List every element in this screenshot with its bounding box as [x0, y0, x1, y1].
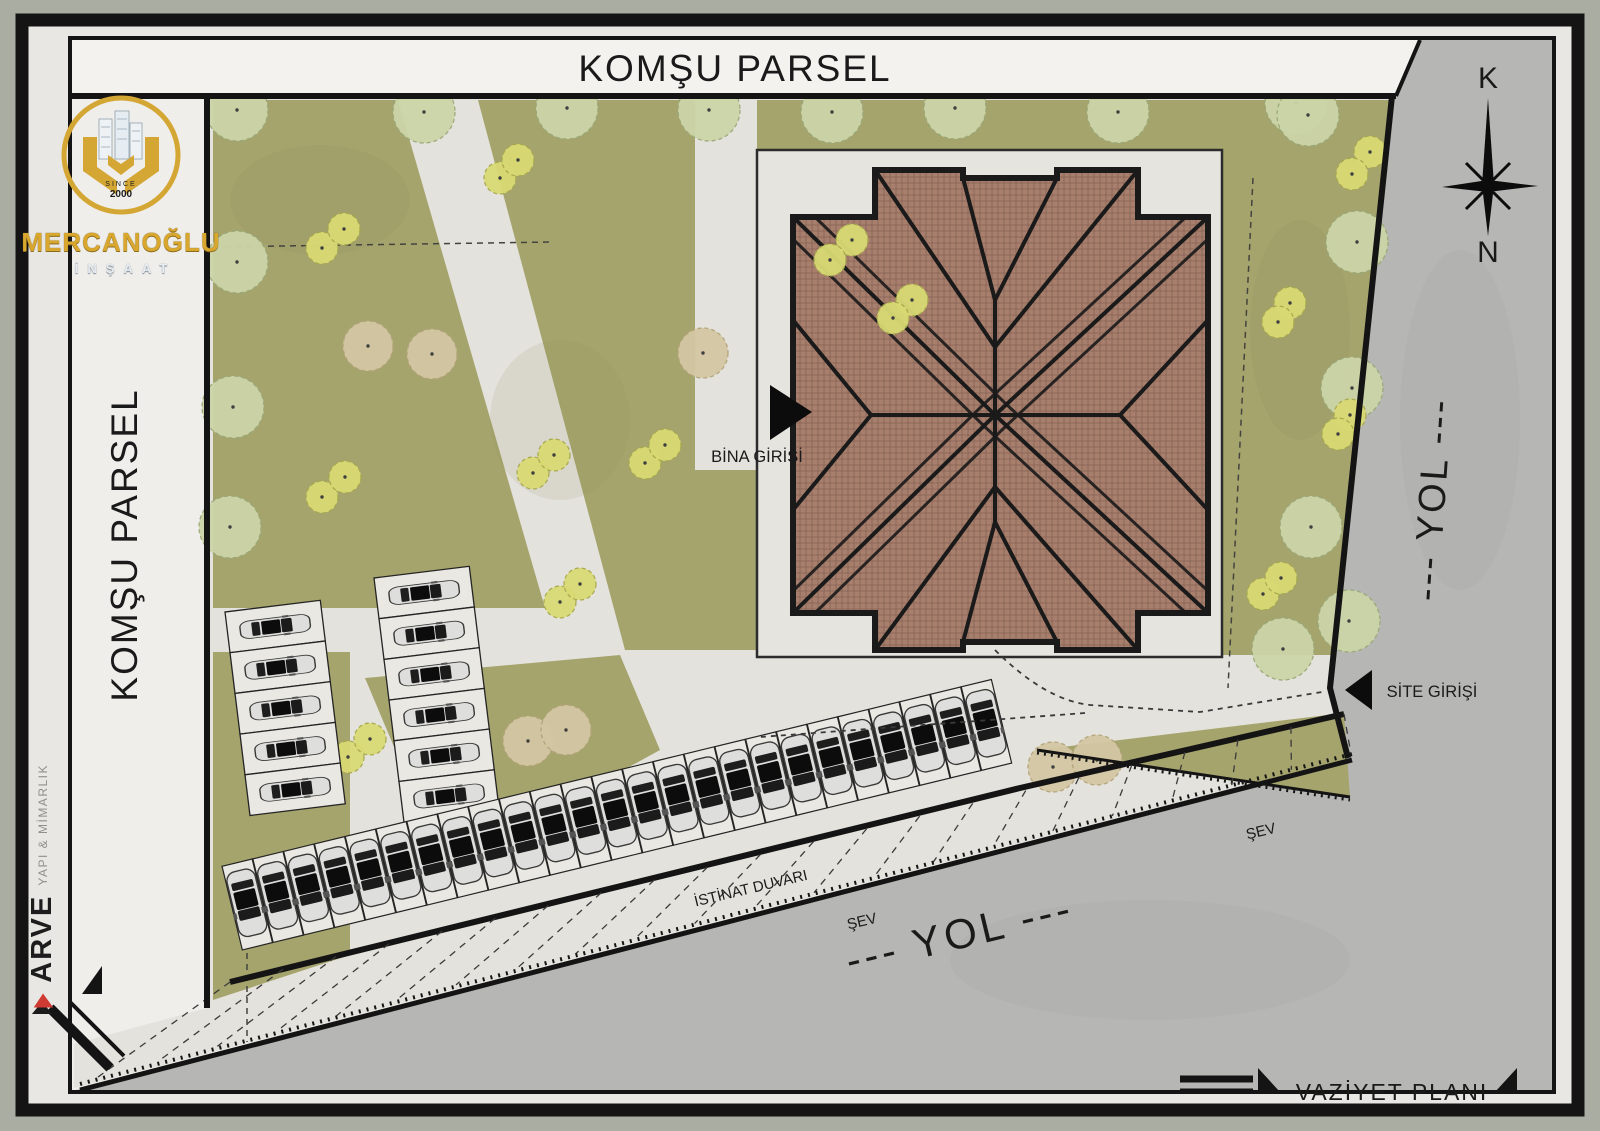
tree-pale — [1318, 590, 1380, 652]
logo-since-label: SINCE — [105, 181, 136, 188]
studio-tagline: YAPI & MİMARLIK — [36, 764, 50, 886]
tree-shrub — [502, 144, 534, 176]
top-parcel-strip: KOMŞU PARSEL — [72, 40, 1420, 96]
site-plan-svg: KOMŞU PARSEL KOMŞU PARSEL BİNA GİRİŞİ Sİ… — [0, 0, 1600, 1131]
tree-shrub — [354, 723, 386, 755]
compass-n-label: N — [1477, 236, 1499, 269]
tree-tan — [407, 329, 457, 379]
tree-tan — [343, 321, 393, 371]
tree-pale — [1280, 496, 1342, 558]
compass-k-label: K — [1478, 62, 1498, 95]
company-name: MERCANOĞLU — [18, 227, 224, 258]
tree-shrub — [1336, 158, 1368, 190]
site-entrance-label: SİTE GİRİŞİ — [1387, 682, 1478, 701]
plan-title: VAZİYET PLANI — [1296, 1079, 1489, 1105]
tree-shrub — [329, 461, 361, 493]
tree-shrub — [649, 429, 681, 461]
studio-brand-name: ARVE — [26, 895, 59, 983]
tree-tan — [541, 705, 591, 755]
top-parcel-label: KOMŞU PARSEL — [578, 48, 891, 89]
building-entrance-label: BİNA GİRİŞİ — [711, 447, 803, 466]
tree-shrub — [1262, 306, 1294, 338]
company-logo: SINCE 2000 MERCANOĞLU İNŞAAT — [18, 92, 224, 276]
studio-brand: ARVE YAPI & MİMARLIK — [26, 764, 59, 1014]
left-parcel-label: KOMŞU PARSEL — [104, 388, 145, 701]
tree-shrub — [1265, 562, 1297, 594]
logo-year-label: 2000 — [110, 189, 133, 200]
tree-pale — [1252, 618, 1314, 680]
vaziyet-plani-sheet: { "frame": { "plan_label": "VAZİYET PLAN… — [0, 0, 1600, 1131]
tree-tan — [678, 328, 728, 378]
tree-shrub — [328, 213, 360, 245]
company-emblem-icon: SINCE 2000 — [58, 92, 184, 218]
tree-shrub — [877, 302, 909, 334]
company-subtitle: İNŞAAT — [18, 261, 224, 276]
tree-shrub — [814, 244, 846, 276]
tree-shrub — [564, 568, 596, 600]
tree-pale — [202, 376, 264, 438]
studio-logomark-icon — [29, 992, 57, 1014]
tree-shrub — [1322, 418, 1354, 450]
tree-shrub — [538, 439, 570, 471]
